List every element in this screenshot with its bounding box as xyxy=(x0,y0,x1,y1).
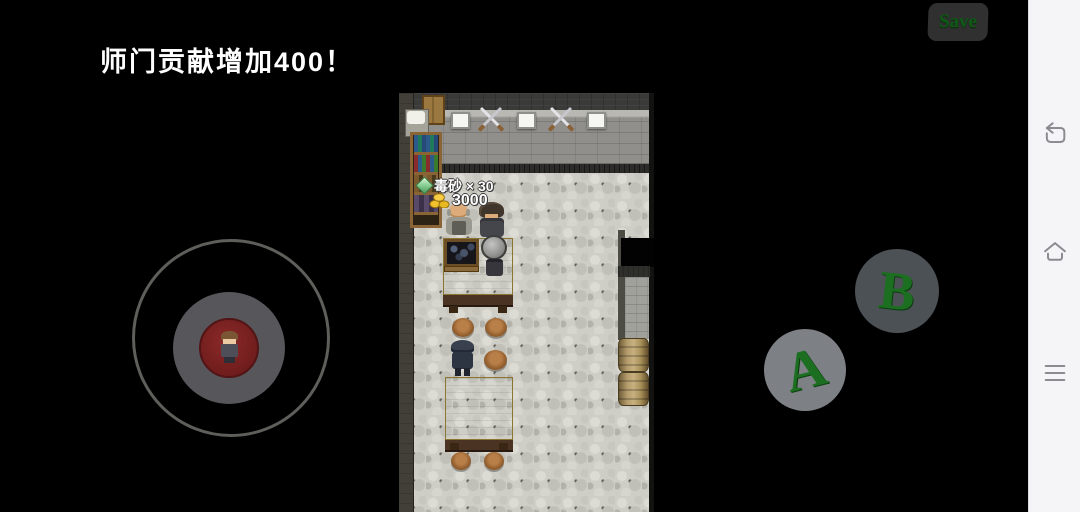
right-wall xyxy=(649,93,654,512)
android-navbar xyxy=(1028,0,1080,512)
coins-icon xyxy=(429,192,451,208)
table-leg xyxy=(498,306,507,313)
wall-opening xyxy=(621,238,654,267)
plaque-icon xyxy=(451,112,470,129)
cooking-pot xyxy=(481,235,507,260)
book-row xyxy=(414,135,438,155)
home-icon[interactable] xyxy=(1041,239,1069,267)
avatar-body xyxy=(221,344,238,357)
crossed-swords-icon xyxy=(546,105,576,132)
joystick-avatar xyxy=(220,331,240,365)
player-leg xyxy=(464,368,470,376)
table-top xyxy=(445,377,513,440)
stool xyxy=(484,452,504,470)
plaque-icon xyxy=(587,112,606,129)
stool xyxy=(484,350,507,370)
alcove-cornice xyxy=(618,266,650,277)
player-character xyxy=(449,340,476,377)
alcove-wall xyxy=(625,277,649,339)
save-button[interactable]: Save xyxy=(927,3,988,41)
plaque-icon xyxy=(517,112,536,129)
button-a[interactable]: A xyxy=(764,329,846,411)
barrel xyxy=(618,372,649,406)
button-b[interactable]: B xyxy=(855,249,939,333)
game-screen: 师门贡献增加400！ Save xyxy=(0,0,1080,512)
stool xyxy=(485,318,507,337)
button-a-label: A xyxy=(778,334,833,406)
barrel xyxy=(618,338,649,372)
game-viewport[interactable]: 毒砂 × 30 3000 xyxy=(399,93,654,512)
menu-icon[interactable] xyxy=(1041,361,1069,385)
crossed-swords-icon xyxy=(476,105,506,132)
table-leg xyxy=(450,443,459,450)
player-leg xyxy=(455,368,461,376)
table-leg xyxy=(499,443,508,450)
player-body xyxy=(452,352,473,369)
stove xyxy=(444,239,479,267)
button-b-label: B xyxy=(876,258,918,323)
joystick-thumb[interactable] xyxy=(199,318,259,378)
stool xyxy=(451,452,471,470)
npc-hair xyxy=(447,209,451,216)
dining-table xyxy=(445,377,513,450)
stool xyxy=(452,318,474,337)
book-row xyxy=(414,155,438,175)
npc-apron xyxy=(452,221,466,235)
pot-stand xyxy=(486,259,503,276)
npc-hair xyxy=(466,209,470,216)
back-icon[interactable] xyxy=(1041,121,1069,149)
gold-amount-text: 3000 xyxy=(452,192,488,210)
table-leg xyxy=(449,306,458,313)
avatar-legs xyxy=(224,357,235,363)
toast-message: 师门贡献增加400！ xyxy=(100,40,354,79)
